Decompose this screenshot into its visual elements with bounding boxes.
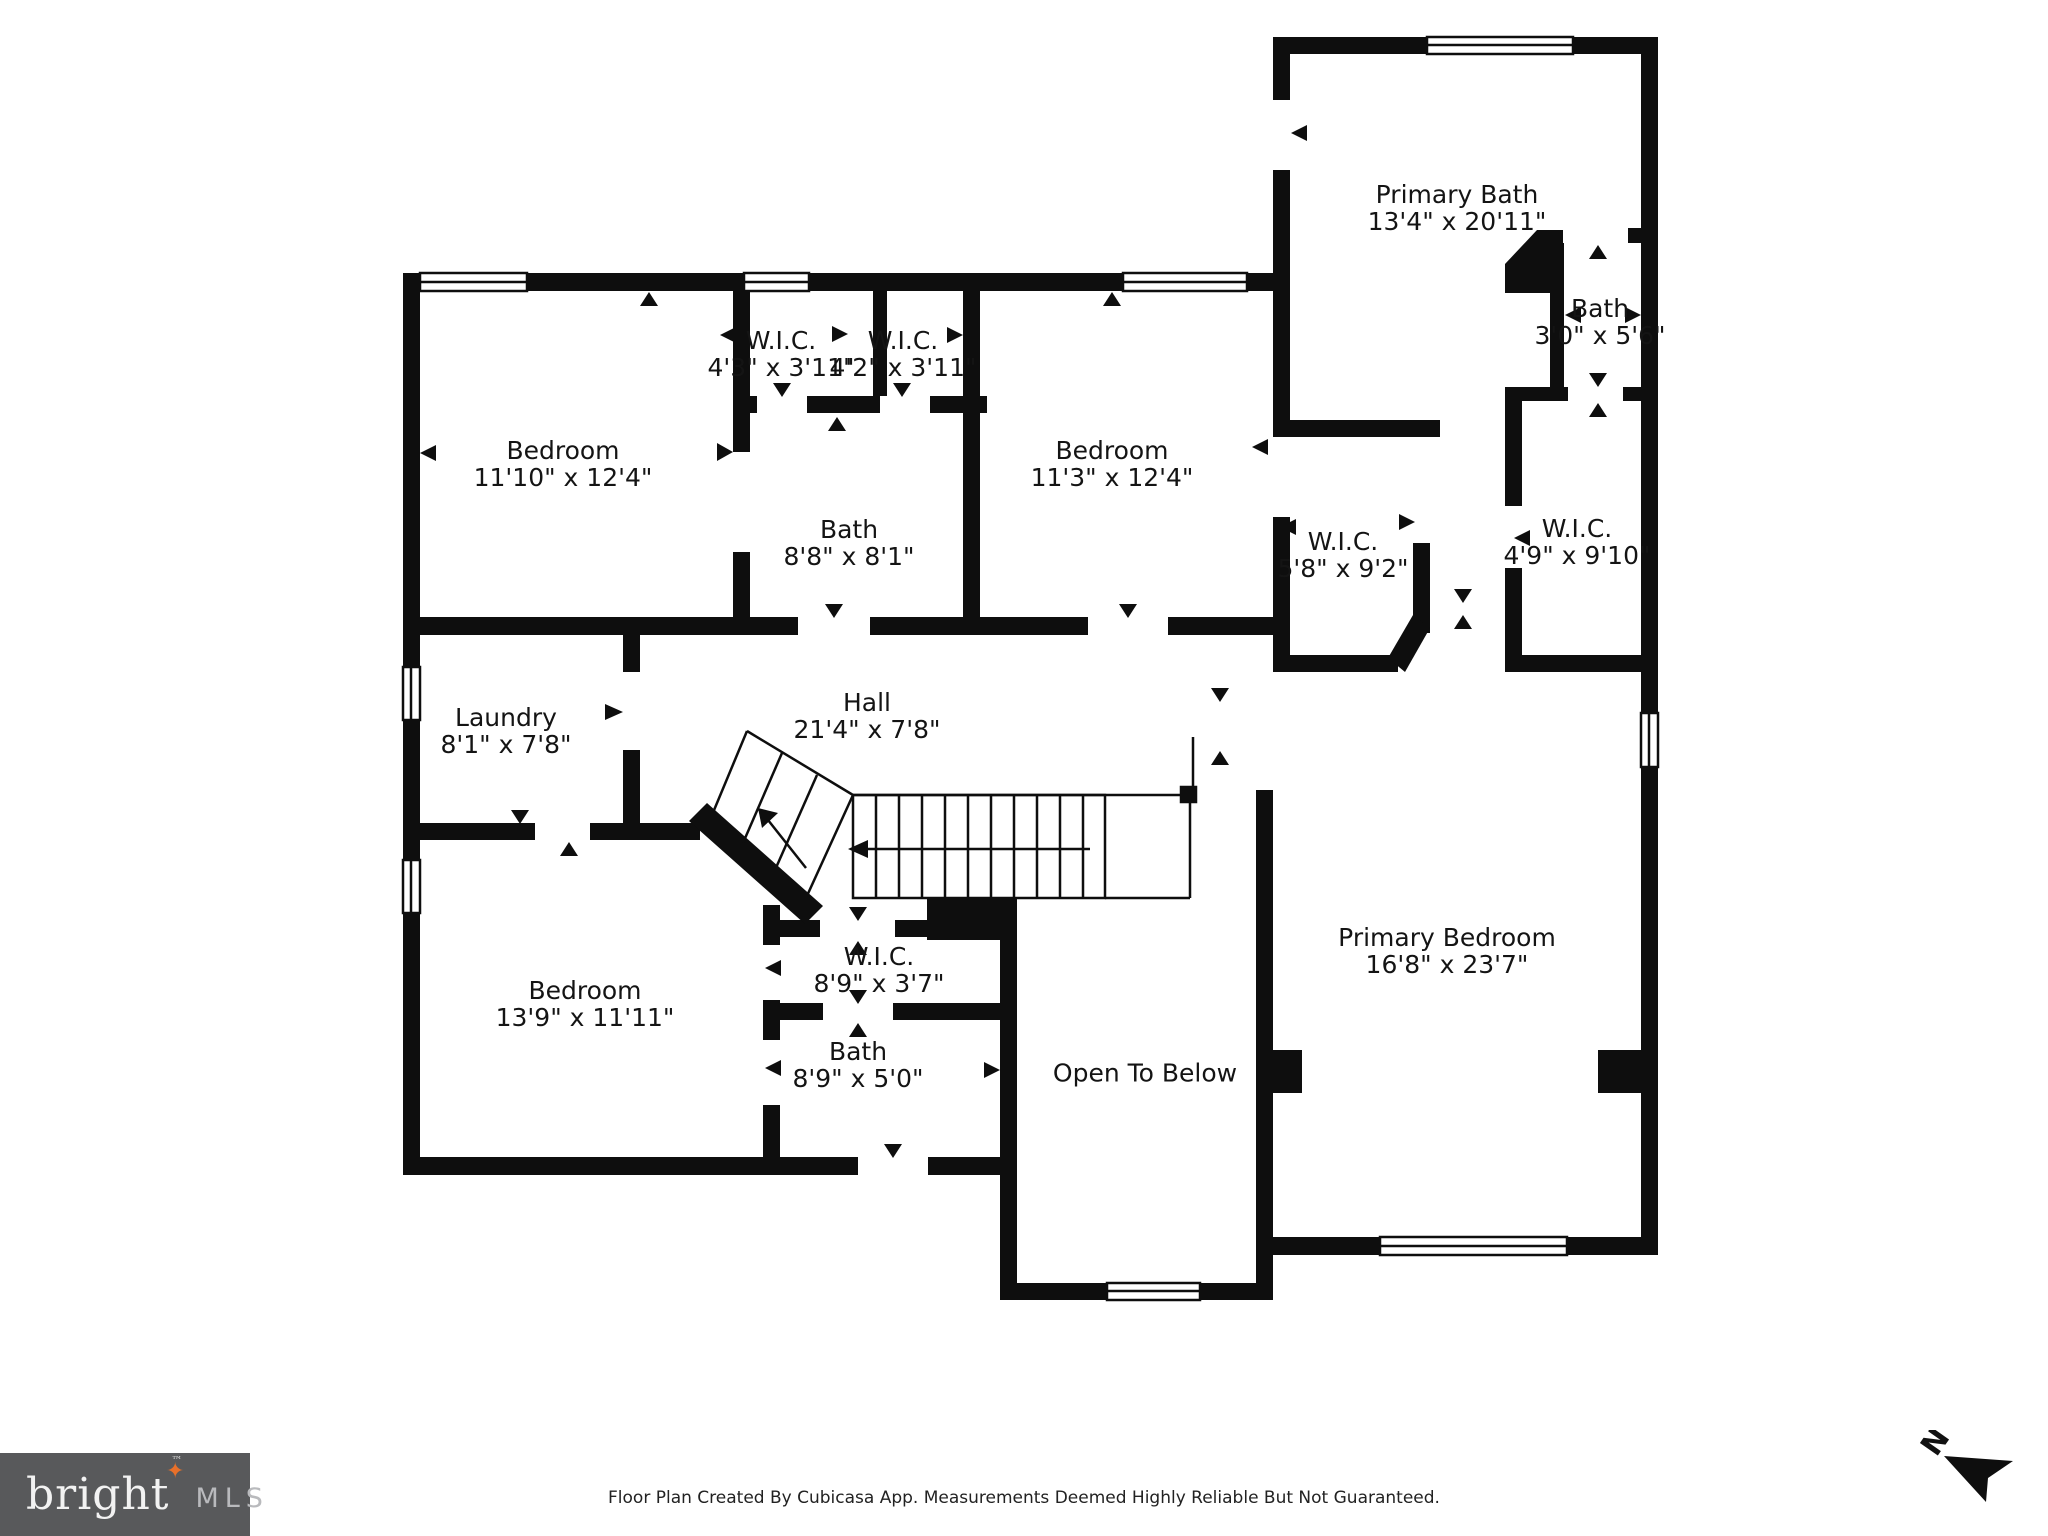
north-arrow: N: [1900, 1430, 2048, 1536]
floorplan-page: Primary Bath13'4" x 20'11"Bath3'0" x 5'6…: [0, 0, 2048, 1536]
window: [744, 273, 809, 291]
windows: [403, 37, 1658, 1300]
logo-mls-text: MLS: [195, 1483, 268, 1514]
door-openings: [535, 100, 1623, 1175]
floorplan-drawing: [0, 0, 2048, 1536]
window: [403, 667, 420, 720]
bright-mls-logo: bright✦™ MLS: [0, 1453, 250, 1536]
walls: [403, 37, 1658, 1300]
window: [1380, 1237, 1567, 1255]
footer-disclaimer: Floor Plan Created By Cubicasa App. Meas…: [0, 1488, 2048, 1508]
window: [1107, 1283, 1200, 1300]
trademark-symbol: ™: [171, 1454, 183, 1467]
compass-arrow: [1944, 1456, 2013, 1502]
window: [1641, 713, 1658, 767]
window: [403, 860, 420, 913]
window: [420, 273, 527, 291]
window: [1427, 37, 1573, 54]
window: [1123, 273, 1247, 291]
logo-brand-text: bright✦™: [26, 1473, 181, 1517]
